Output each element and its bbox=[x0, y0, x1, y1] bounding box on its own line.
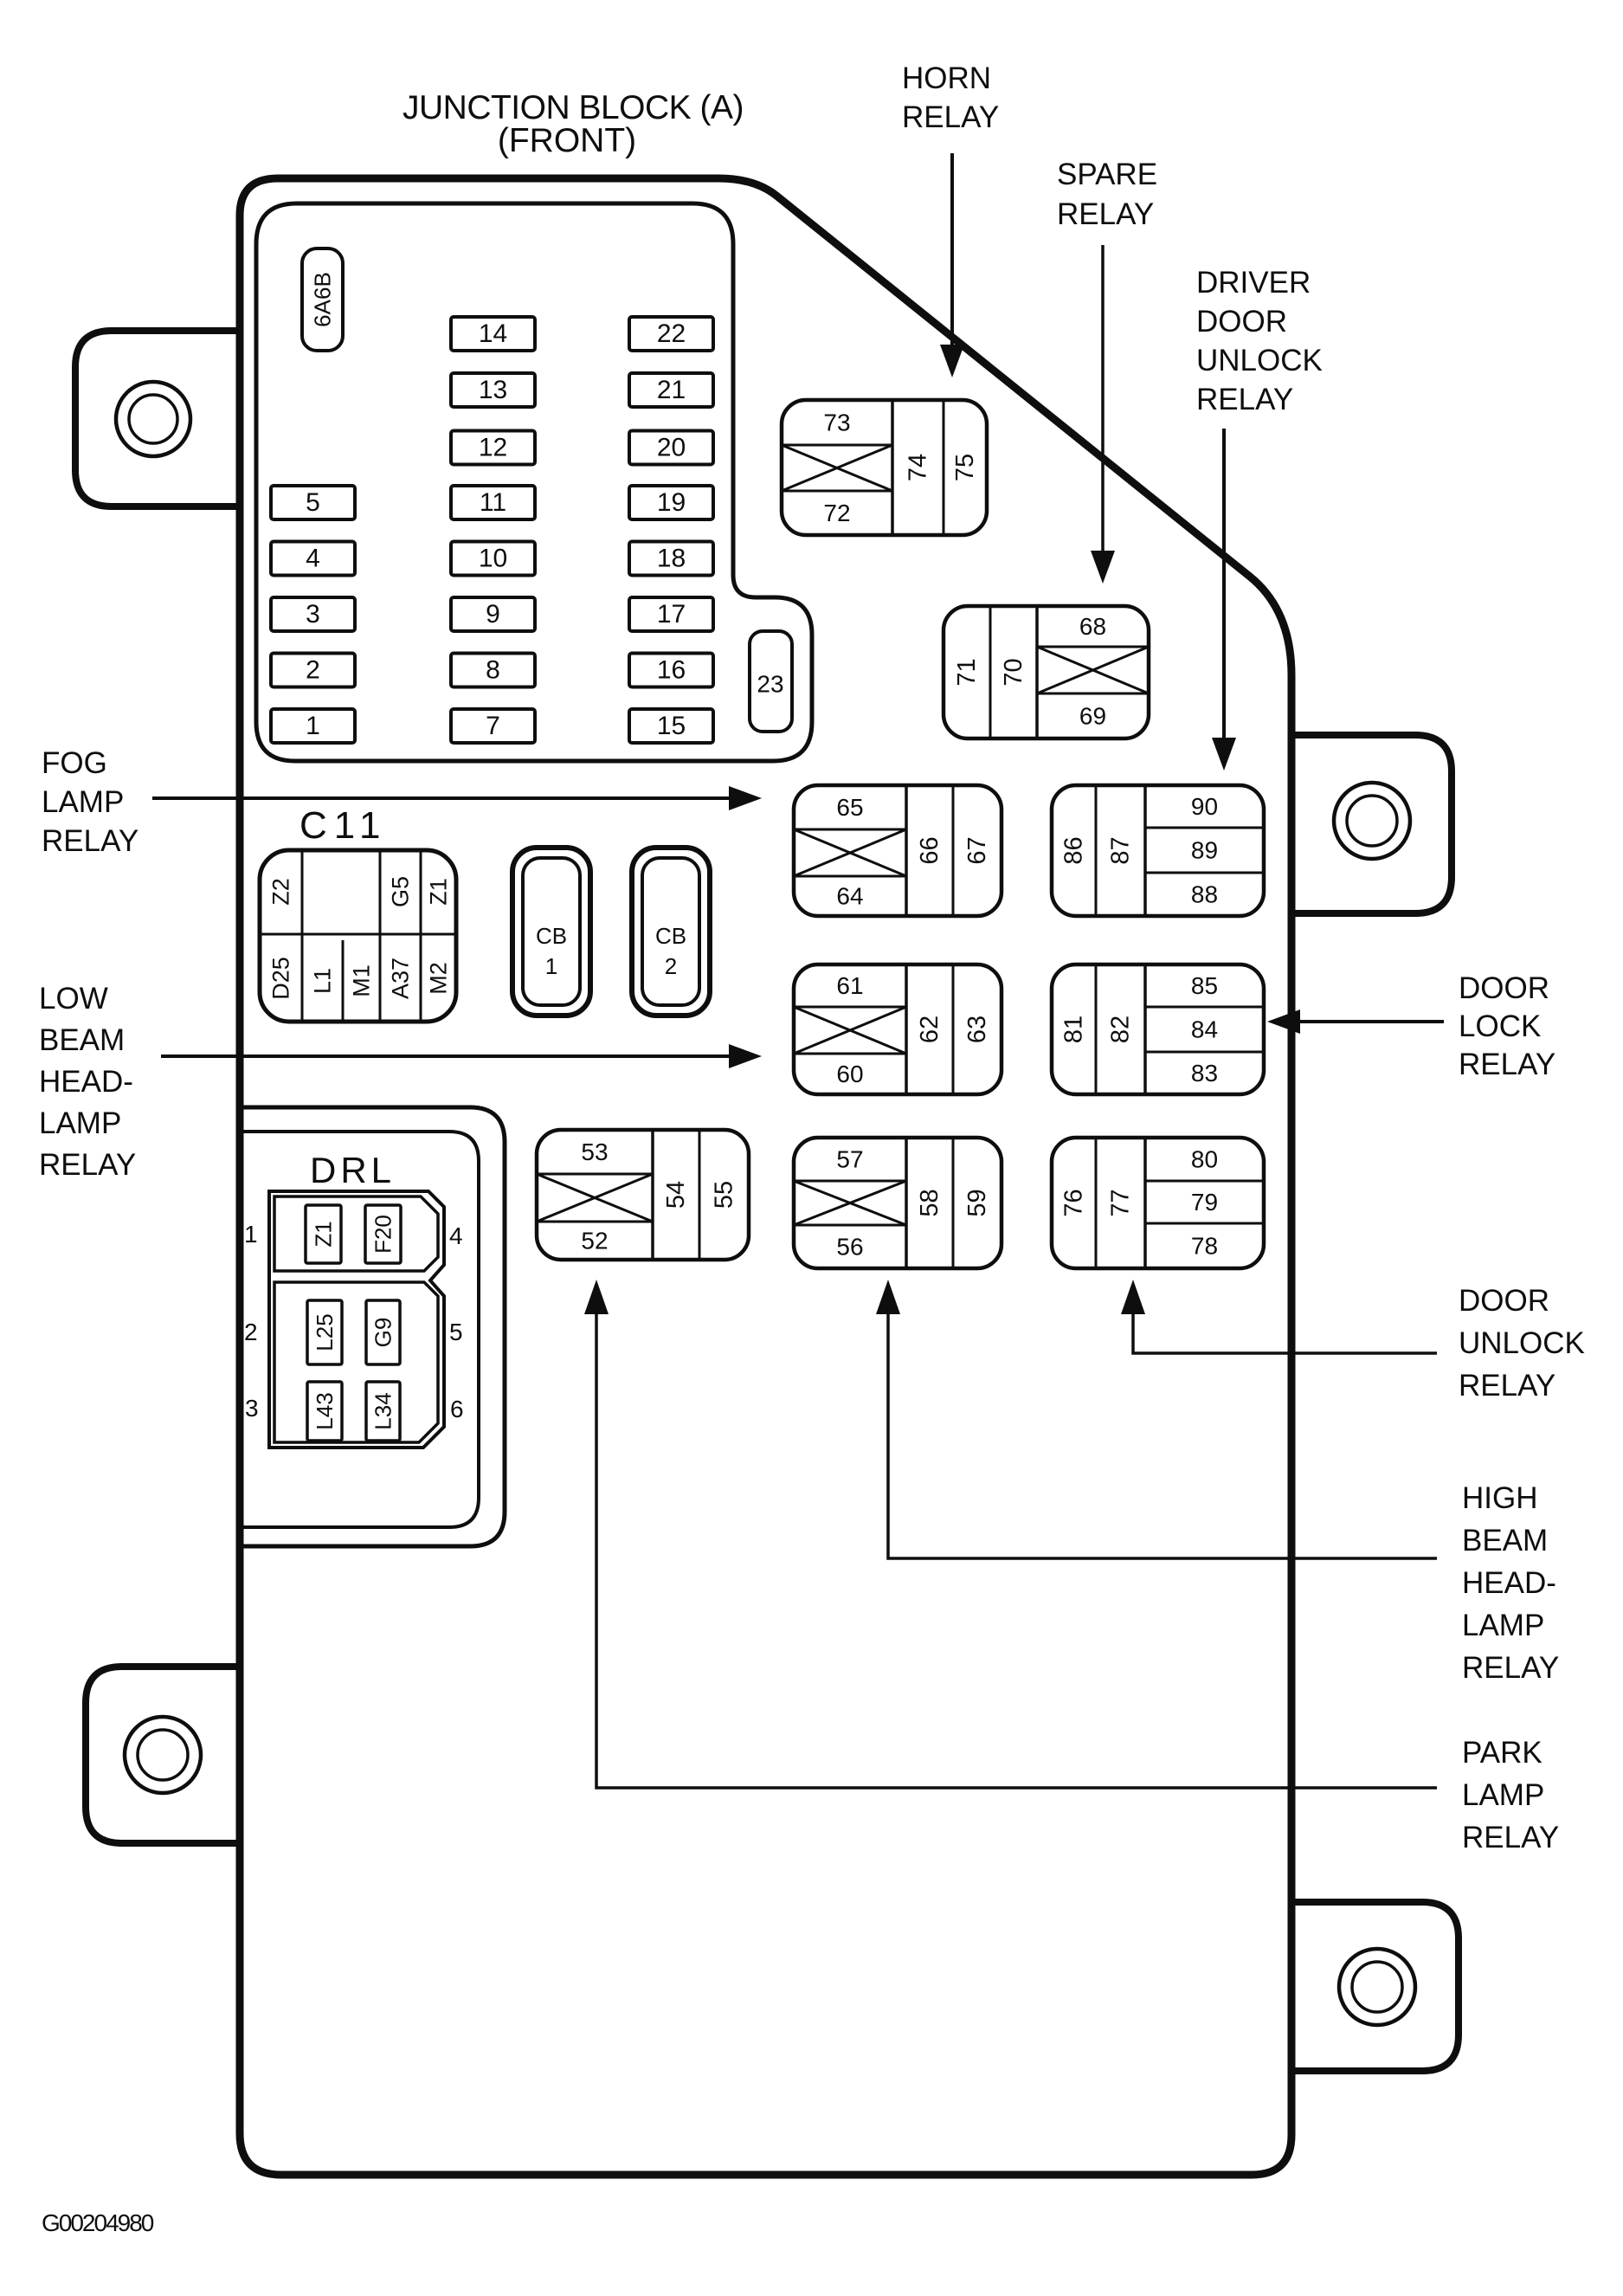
svg-text:RELAY: RELAY bbox=[1459, 1048, 1555, 1081]
svg-text:LOW: LOW bbox=[39, 982, 108, 1016]
svg-text:HORN: HORN bbox=[902, 61, 991, 95]
svg-text:RELAY: RELAY bbox=[42, 824, 138, 858]
svg-text:3: 3 bbox=[245, 1395, 259, 1422]
svg-text:58: 58 bbox=[916, 1189, 944, 1216]
svg-text:M2: M2 bbox=[426, 962, 452, 995]
svg-text:DOOR: DOOR bbox=[1196, 305, 1287, 339]
svg-text:89: 89 bbox=[1191, 837, 1218, 864]
svg-text:12: 12 bbox=[479, 434, 507, 462]
svg-text:75: 75 bbox=[951, 454, 979, 481]
svg-text:83: 83 bbox=[1191, 1060, 1218, 1087]
svg-text:52: 52 bbox=[581, 1228, 608, 1254]
svg-text:69: 69 bbox=[1079, 703, 1106, 730]
svg-text:JUNCTION BLOCK (A): JUNCTION BLOCK (A) bbox=[403, 89, 744, 126]
svg-text:RELAY: RELAY bbox=[1057, 197, 1154, 231]
svg-text:6A6B: 6A6B bbox=[310, 272, 336, 327]
svg-text:A37: A37 bbox=[388, 958, 414, 999]
svg-text:(FRONT): (FRONT) bbox=[498, 122, 636, 159]
svg-text:M1: M1 bbox=[349, 964, 375, 997]
svg-text:76: 76 bbox=[1060, 1189, 1088, 1216]
svg-text:LAMP: LAMP bbox=[42, 785, 124, 819]
svg-text:53: 53 bbox=[581, 1138, 608, 1165]
svg-text:70: 70 bbox=[1000, 658, 1027, 686]
svg-text:18: 18 bbox=[657, 545, 686, 573]
svg-text:71: 71 bbox=[953, 658, 981, 686]
svg-text:17: 17 bbox=[657, 600, 686, 629]
svg-text:22: 22 bbox=[657, 319, 686, 348]
svg-text:80: 80 bbox=[1191, 1146, 1218, 1173]
svg-text:BEAM: BEAM bbox=[39, 1023, 125, 1057]
svg-text:HEAD-: HEAD- bbox=[1462, 1566, 1556, 1600]
svg-text:7: 7 bbox=[486, 712, 500, 740]
svg-text:LAMP: LAMP bbox=[1462, 1609, 1544, 1642]
svg-text:8: 8 bbox=[486, 656, 500, 685]
svg-text:LAMP: LAMP bbox=[39, 1106, 121, 1140]
svg-text:59: 59 bbox=[963, 1189, 991, 1216]
svg-text:G00204980: G00204980 bbox=[42, 2209, 154, 2236]
svg-text:D25: D25 bbox=[268, 957, 294, 1000]
svg-text:PARK: PARK bbox=[1462, 1736, 1542, 1770]
svg-text:66: 66 bbox=[916, 836, 944, 864]
svg-text:F20: F20 bbox=[370, 1215, 396, 1254]
svg-text:C11: C11 bbox=[299, 804, 387, 847]
svg-text:11: 11 bbox=[480, 488, 506, 517]
svg-text:6: 6 bbox=[450, 1396, 464, 1422]
svg-text:Z1: Z1 bbox=[311, 1221, 337, 1247]
svg-text:85: 85 bbox=[1191, 972, 1218, 999]
svg-text:HEAD-: HEAD- bbox=[39, 1065, 133, 1099]
svg-text:5: 5 bbox=[306, 488, 320, 517]
svg-text:UNLOCK: UNLOCK bbox=[1459, 1326, 1585, 1360]
svg-text:1: 1 bbox=[306, 712, 320, 740]
svg-text:RELAY: RELAY bbox=[39, 1148, 136, 1182]
svg-text:15: 15 bbox=[657, 712, 686, 740]
svg-text:UNLOCK: UNLOCK bbox=[1196, 344, 1323, 377]
svg-text:86: 86 bbox=[1060, 836, 1088, 864]
svg-text:RELAY: RELAY bbox=[1196, 383, 1293, 416]
svg-text:13: 13 bbox=[479, 376, 507, 404]
svg-text:2: 2 bbox=[665, 953, 677, 979]
svg-text:DRL: DRL bbox=[310, 1150, 396, 1190]
svg-text:10: 10 bbox=[479, 545, 507, 573]
svg-text:21: 21 bbox=[657, 376, 686, 404]
svg-text:77: 77 bbox=[1107, 1189, 1135, 1216]
svg-text:55: 55 bbox=[711, 1181, 738, 1209]
svg-text:5: 5 bbox=[449, 1319, 463, 1345]
svg-text:G5: G5 bbox=[388, 876, 414, 907]
svg-text:74: 74 bbox=[905, 454, 932, 481]
svg-text:16: 16 bbox=[657, 656, 686, 685]
svg-text:65: 65 bbox=[836, 794, 863, 821]
svg-text:LAMP: LAMP bbox=[1462, 1778, 1544, 1812]
svg-text:DOOR: DOOR bbox=[1459, 971, 1549, 1005]
svg-text:9: 9 bbox=[486, 600, 500, 629]
svg-text:DOOR: DOOR bbox=[1459, 1284, 1549, 1318]
svg-text:67: 67 bbox=[963, 836, 991, 864]
svg-text:BEAM: BEAM bbox=[1462, 1524, 1548, 1558]
svg-text:73: 73 bbox=[823, 410, 850, 436]
svg-text:84: 84 bbox=[1191, 1016, 1218, 1043]
svg-text:HIGH: HIGH bbox=[1462, 1481, 1538, 1515]
svg-text:20: 20 bbox=[657, 434, 686, 462]
svg-text:68: 68 bbox=[1079, 613, 1106, 640]
svg-text:4: 4 bbox=[306, 545, 320, 573]
svg-text:60: 60 bbox=[836, 1061, 863, 1087]
svg-text:81: 81 bbox=[1060, 1016, 1088, 1043]
svg-text:4: 4 bbox=[449, 1222, 463, 1249]
svg-text:L43: L43 bbox=[312, 1392, 338, 1429]
svg-text:CB: CB bbox=[536, 923, 567, 949]
svg-text:2: 2 bbox=[244, 1319, 258, 1345]
svg-text:2: 2 bbox=[306, 656, 320, 685]
svg-text:RELAY: RELAY bbox=[1459, 1369, 1555, 1403]
svg-text:G9: G9 bbox=[370, 1318, 396, 1348]
svg-text:RELAY: RELAY bbox=[1462, 1651, 1559, 1685]
svg-text:63: 63 bbox=[963, 1016, 991, 1043]
svg-text:L34: L34 bbox=[370, 1392, 396, 1429]
svg-text:14: 14 bbox=[479, 319, 507, 348]
svg-text:RELAY: RELAY bbox=[1462, 1821, 1559, 1854]
svg-text:Z2: Z2 bbox=[268, 878, 294, 906]
svg-text:79: 79 bbox=[1191, 1189, 1218, 1216]
svg-text:90: 90 bbox=[1191, 793, 1218, 820]
svg-text:1: 1 bbox=[244, 1221, 258, 1248]
svg-text:DRIVER: DRIVER bbox=[1196, 266, 1311, 300]
svg-text:CB: CB bbox=[655, 923, 686, 949]
svg-text:3: 3 bbox=[306, 600, 320, 629]
svg-text:88: 88 bbox=[1191, 881, 1218, 908]
svg-text:87: 87 bbox=[1107, 836, 1135, 864]
svg-text:SPARE: SPARE bbox=[1057, 158, 1157, 191]
svg-text:82: 82 bbox=[1107, 1016, 1135, 1043]
svg-text:1: 1 bbox=[545, 953, 557, 979]
svg-text:RELAY: RELAY bbox=[902, 100, 999, 134]
svg-text:72: 72 bbox=[823, 500, 850, 526]
svg-text:L25: L25 bbox=[312, 1313, 338, 1351]
svg-text:Z1: Z1 bbox=[426, 878, 452, 906]
svg-text:78: 78 bbox=[1191, 1233, 1218, 1260]
svg-text:62: 62 bbox=[916, 1016, 944, 1043]
svg-text:57: 57 bbox=[836, 1146, 863, 1173]
svg-text:L1: L1 bbox=[310, 968, 336, 994]
svg-text:LOCK: LOCK bbox=[1459, 1009, 1541, 1043]
svg-text:56: 56 bbox=[836, 1234, 863, 1261]
svg-text:61: 61 bbox=[836, 972, 863, 999]
svg-text:23: 23 bbox=[757, 671, 783, 698]
svg-text:19: 19 bbox=[657, 488, 686, 517]
svg-text:54: 54 bbox=[662, 1181, 690, 1209]
svg-text:FOG: FOG bbox=[42, 746, 107, 780]
svg-text:64: 64 bbox=[836, 883, 863, 910]
